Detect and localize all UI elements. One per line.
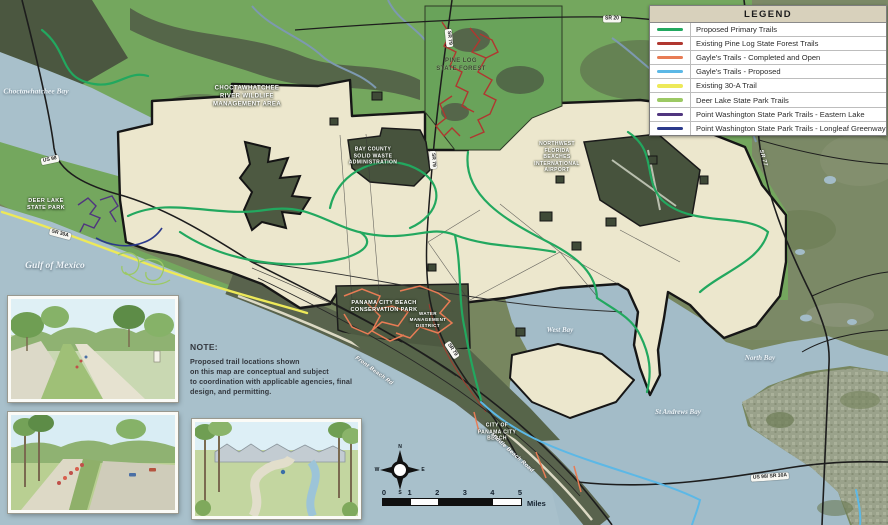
legend-row: Existing 30-A Trail: [650, 79, 886, 93]
label-conservation-park: PANAMA CITY BEACHCONSERVATION PARK: [351, 300, 418, 314]
legend-label: Deer Lake State Park Trails: [691, 96, 789, 105]
label-airport: NORTHWESTFLORIDABEACHESINTERNATIONALAIRP…: [534, 141, 580, 174]
scale-unit: Miles: [527, 499, 546, 508]
trail-color-chip: [650, 23, 691, 36]
scale-bar: 0 1 2 3 4 5 Miles: [382, 488, 552, 506]
trail-color-chip: [650, 65, 691, 78]
label-north-bay: North Bay: [745, 354, 775, 362]
trail-color-chip: [650, 51, 691, 64]
legend-row: Gayle's Trails - Proposed: [650, 65, 886, 79]
legend-label: Proposed Primary Trails: [691, 25, 777, 34]
legend-label: Point Washington State Park Trails - Eas…: [691, 110, 865, 119]
label-st-andrews-bay: St Andrews Bay: [655, 408, 701, 416]
legend-row: Deer Lake State Park Trails: [650, 93, 886, 107]
label-solid-waste: BAY COUNTYSOLID WASTEADMINISTRATION: [349, 146, 398, 166]
trail-rendering-median-road: [8, 296, 178, 402]
label-gulf-of-mexico: Gulf of Mexico: [25, 261, 85, 271]
legend-label: Existing Pine Log State Forest Trails: [691, 39, 818, 48]
legend-items: Proposed Primary TrailsExisting Pine Log…: [650, 23, 886, 135]
legend-label: Gayle's Trails - Proposed: [691, 67, 781, 76]
trail-color-chip: [650, 122, 691, 135]
shield-sr79-mid: SR 79: [429, 151, 437, 169]
legend-label: Point Washington State Park Trails - Lon…: [691, 124, 886, 133]
map-note: NOTE: Proposed trail locations shown on …: [190, 342, 352, 397]
trail-color-chip: [650, 79, 691, 92]
shield-sr20: SR 20: [603, 16, 621, 23]
scale-bar-segments: [382, 498, 522, 506]
trail-rendering-greenway: [192, 419, 361, 519]
legend-title: LEGEND: [650, 6, 886, 23]
compass-n: N: [398, 444, 402, 450]
compass-e: E: [421, 467, 424, 473]
label-choctawhatchee-bay: Choctawhatchee Bay: [3, 87, 68, 96]
legend-label: Existing 30-A Trail: [691, 81, 757, 90]
label-water-mgmt: WATERMANAGEMENTDISTRICT: [410, 311, 447, 329]
label-pine-log: PINE LOGSTATE FOREST: [436, 58, 486, 74]
label-deer-lake: DEER LAKESTATE PARK: [27, 198, 65, 212]
trail-rendering-cyclists: [8, 412, 178, 513]
note-heading: NOTE:: [190, 342, 352, 352]
trail-color-chip: [650, 93, 691, 106]
trail-color-chip: [650, 37, 691, 50]
legend-row: Point Washington State Park Trails - Lon…: [650, 122, 886, 135]
label-west-bay: West Bay: [547, 326, 574, 334]
legend-row: Gayle's Trails - Completed and Open: [650, 51, 886, 65]
legend-panel: LEGEND Proposed Primary TrailsExisting P…: [649, 5, 887, 136]
legend-label: Gayle's Trails - Completed and Open: [691, 53, 820, 62]
legend-row: Existing Pine Log State Forest Trails: [650, 37, 886, 51]
trails-master-plan-map: Choctawhatchee Bay Gulf of Mexico West B…: [0, 0, 888, 525]
legend-row: Proposed Primary Trails: [650, 23, 886, 37]
label-wma: CHOCTAWHATCHEERIVER WILDLIFEMANAGEMENT A…: [213, 85, 281, 108]
legend-row: Point Washington State Park Trails - Eas…: [650, 108, 886, 122]
scale-ticks: 0 1 2 3 4 5: [382, 488, 520, 497]
trail-color-chip: [650, 108, 691, 121]
compass-w: W: [375, 467, 380, 473]
